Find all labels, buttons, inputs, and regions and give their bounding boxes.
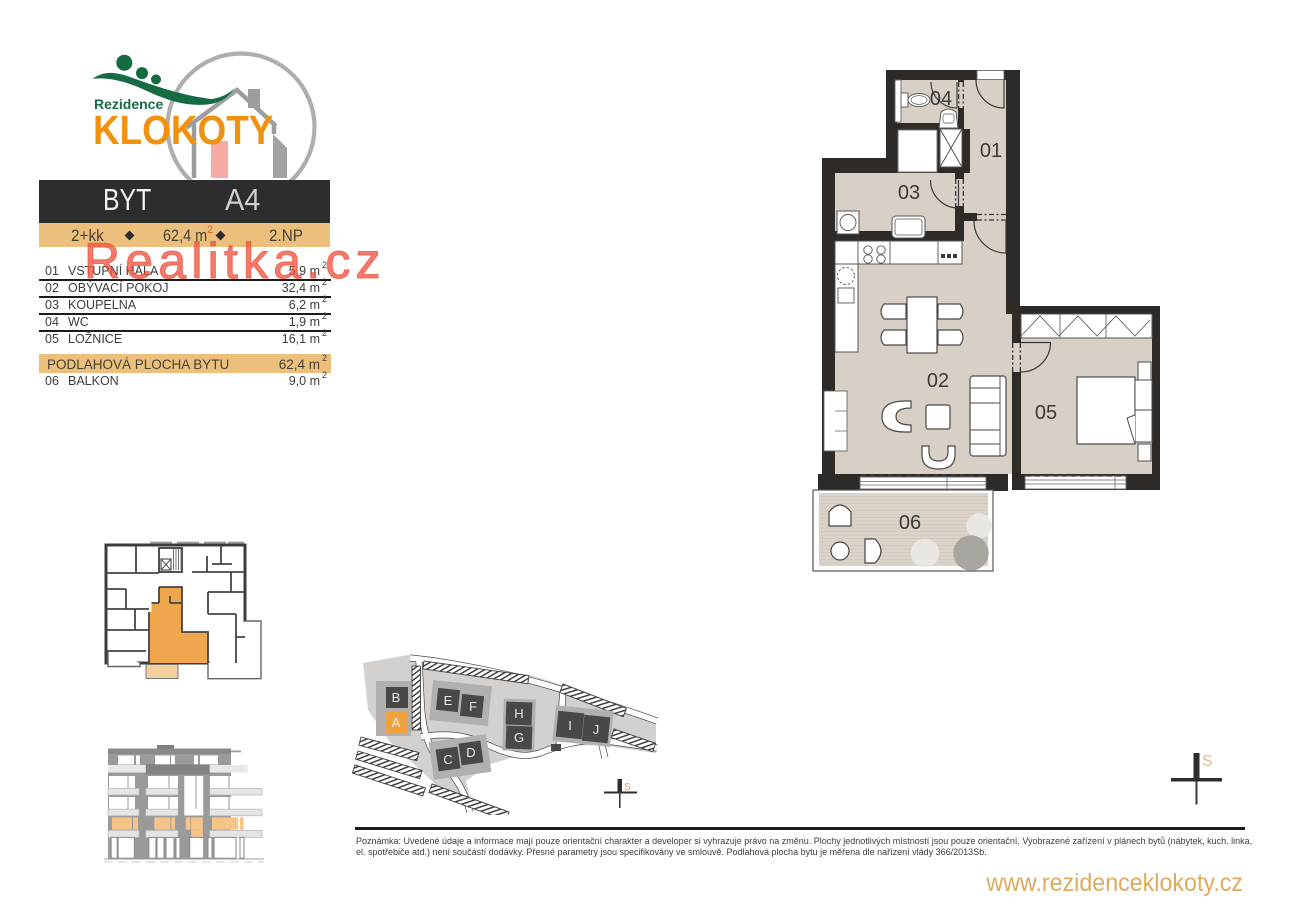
svg-text:I: I bbox=[568, 718, 572, 733]
svg-text:B: B bbox=[392, 690, 401, 705]
svg-text:A: A bbox=[392, 715, 401, 730]
svg-text:03: 03 bbox=[898, 182, 920, 204]
svg-text:D: D bbox=[466, 745, 475, 760]
svg-text:KLOKOTY: KLOKOTY bbox=[93, 108, 273, 153]
svg-text:G: G bbox=[514, 730, 524, 745]
svg-text:H: H bbox=[514, 706, 523, 721]
svg-text:02: 02 bbox=[927, 370, 949, 392]
svg-text:06: 06 bbox=[899, 512, 921, 534]
svg-text:C: C bbox=[443, 752, 452, 767]
svg-text:04: 04 bbox=[930, 88, 952, 110]
svg-text:05: 05 bbox=[1035, 402, 1057, 424]
svg-text:E: E bbox=[444, 693, 453, 708]
svg-text:01: 01 bbox=[980, 140, 1002, 162]
svg-text:S: S bbox=[624, 782, 631, 793]
svg-text:S: S bbox=[1202, 753, 1213, 770]
svg-text:F: F bbox=[469, 699, 477, 714]
svg-text:J: J bbox=[593, 722, 600, 737]
